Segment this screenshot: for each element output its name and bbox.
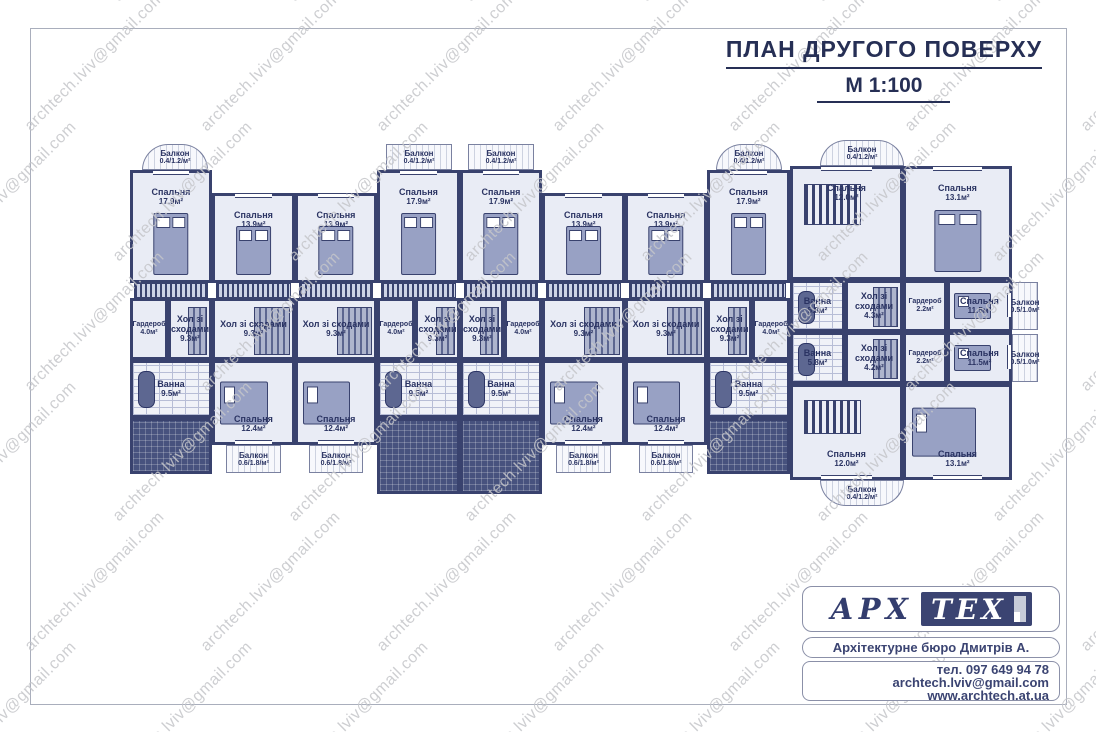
room-rw-balcony-top: Балкон0.4/1.2/м²	[820, 140, 904, 166]
room-u8-hall: Хол зі сходами9.3м²	[707, 298, 752, 360]
room-u2-hall: Хол зі сходами9.3м²	[212, 298, 295, 360]
room-u3-wardrobe-strip	[299, 283, 373, 298]
room-u4-balcony: Балкон0.4/1.2/м²	[386, 144, 452, 170]
page-title: ПЛАН ДРУГОГО ПОВЕРХУ	[726, 36, 1042, 69]
logo-badge: ТЕХ	[921, 592, 1032, 626]
room-u4-bath: Ванна9.5м²	[377, 360, 460, 418]
room-u6-bedroom-b: Спальня12.4м²	[542, 360, 625, 445]
room-u1-wardrobe-strip	[134, 283, 208, 298]
room-u6-balcony: Балкон0.6/1.8/м²	[556, 445, 611, 473]
room-u7-bedroom-b: Спальня12.4м²	[625, 360, 707, 445]
room-u1-bedroom: Спальня17.9м²	[130, 170, 212, 283]
drawing-sheet: Балкон0.4/1.2/м²Спальня17.9м²Гардероб4.0…	[0, 0, 1096, 732]
room-u7-hall: Хол зі сходами9.3м²	[625, 298, 707, 360]
room-u3-balcony: Балкон0.6/1.8/м²	[309, 445, 363, 473]
room-u7-wardrobe-strip	[629, 283, 703, 298]
room-u7-balcony: Балкон0.6/1.8/м²	[639, 445, 693, 473]
room-rw2-bath: Ванна5.8м²	[790, 332, 845, 384]
room-u2-balcony: Балкон0.6/1.8/м²	[226, 445, 281, 473]
room-u6-hall: Хол зі сходами9.3м²	[542, 298, 625, 360]
room-u5-hall: Хол зі сходами9.3м²	[460, 298, 504, 360]
room-rw1-hall: Хол зі сходами4.3м²	[845, 280, 903, 332]
logo-text-arkh: АРХ	[830, 592, 913, 626]
room-u2-bedroom-b: Спальня12.4м²	[212, 360, 295, 445]
room-rw-balcony-right-1: Балкон0.5/1.0м²	[1012, 282, 1038, 330]
room-u5-terrace	[460, 418, 542, 494]
room-u1-terrace	[130, 418, 212, 474]
room-u8-terrace	[707, 418, 790, 474]
room-u5-balcony: Балкон0.4/1.2/м²	[468, 144, 534, 170]
room-u4-wardrobe-strip	[381, 283, 456, 298]
room-rw1-bedroom-12: Спальня12.0м²	[790, 166, 903, 280]
room-u1-garderob: Гардероб4.0м²	[130, 298, 168, 360]
room-u1-bath: Ванна9.5м²	[130, 360, 212, 418]
room-u4-garderob: Гардероб4.0м²	[377, 298, 415, 360]
room-u4-hall: Хол зі сходами9.3м²	[415, 298, 460, 360]
room-u2-bedroom: Спальня13.9м²	[212, 193, 295, 283]
room-rw1-bedroom-13: Спальня13.1м²	[903, 166, 1012, 280]
room-rw2-bedroom-12: Спальня12.0м²	[790, 384, 903, 480]
room-u8-wardrobe-strip	[711, 283, 786, 298]
bureau-name: Архітектурне бюро Дмитрів А.	[802, 637, 1060, 658]
room-u8-garderob: Гардероб4.0м²	[752, 298, 790, 360]
room-rw-balcony-bottom: Балкон0.4/1.2/м²	[820, 480, 904, 506]
room-u3-hall: Хол зі сходами9.3м²	[295, 298, 377, 360]
room-u5-wardrobe-strip	[464, 283, 538, 298]
room-u1-hall: Хол зі сходами9.3м²	[168, 298, 212, 360]
room-rw2-bedroom-13: Спальня13.1м²	[903, 384, 1012, 480]
room-u3-bedroom: Спальня13.9м²	[295, 193, 377, 283]
room-rw-balcony-right-2: Балкон0.5/1.0м²	[1012, 334, 1038, 382]
room-u7-bedroom: Спальня13.9м²	[625, 193, 707, 283]
logo-box: АРХ ТЕХ	[802, 586, 1060, 632]
room-u5-garderob: Гардероб4.0м²	[504, 298, 542, 360]
logo-text-tekh: ТЕХ	[931, 593, 1007, 626]
room-u8-bedroom: Спальня17.9м²	[707, 170, 790, 283]
room-u5-bath: Ванна9.5м²	[460, 360, 542, 418]
room-rw2-bedroom-11: Спальня11.5м²	[947, 332, 1012, 384]
scale-label: М 1:100	[817, 74, 950, 103]
contacts-box: тел. 097 649 94 78 archtech.lviv@gmail.c…	[802, 661, 1060, 701]
drawing-title-block: ПЛАН ДРУГОГО ПОВЕРХУ М 1:100	[726, 36, 1042, 103]
room-u8-balcony: Балкон0.4/1.2/м²	[716, 144, 782, 170]
room-u4-bedroom: Спальня17.9м²	[377, 170, 460, 283]
room-rw1-garderob: Гардероб2.2м²	[903, 280, 947, 332]
room-rw2-hall: Хол зі сходами4.2м²	[845, 332, 903, 384]
room-u5-bedroom: Спальня17.9м²	[460, 170, 542, 283]
room-u1-balcony: Балкон0.4/1.2/м²	[142, 144, 208, 170]
website-url: www.archtech.at.ua	[803, 689, 1049, 702]
room-u2-wardrobe-strip	[216, 283, 291, 298]
room-rw1-bath: Ванна5.8м²	[790, 280, 845, 332]
room-u3-bedroom-b: Спальня12.4м²	[295, 360, 377, 445]
room-u6-wardrobe-strip	[546, 283, 621, 298]
room-u8-bath: Ванна9.5м²	[707, 360, 790, 418]
room-u4-terrace	[377, 418, 460, 494]
door-icon	[1014, 596, 1026, 622]
room-u6-bedroom: Спальня13.9м²	[542, 193, 625, 283]
room-rw2-garderob: Гардероб2.2м²	[903, 332, 947, 384]
room-rw1-bedroom-11: Спальня11.5м²	[947, 280, 1012, 332]
